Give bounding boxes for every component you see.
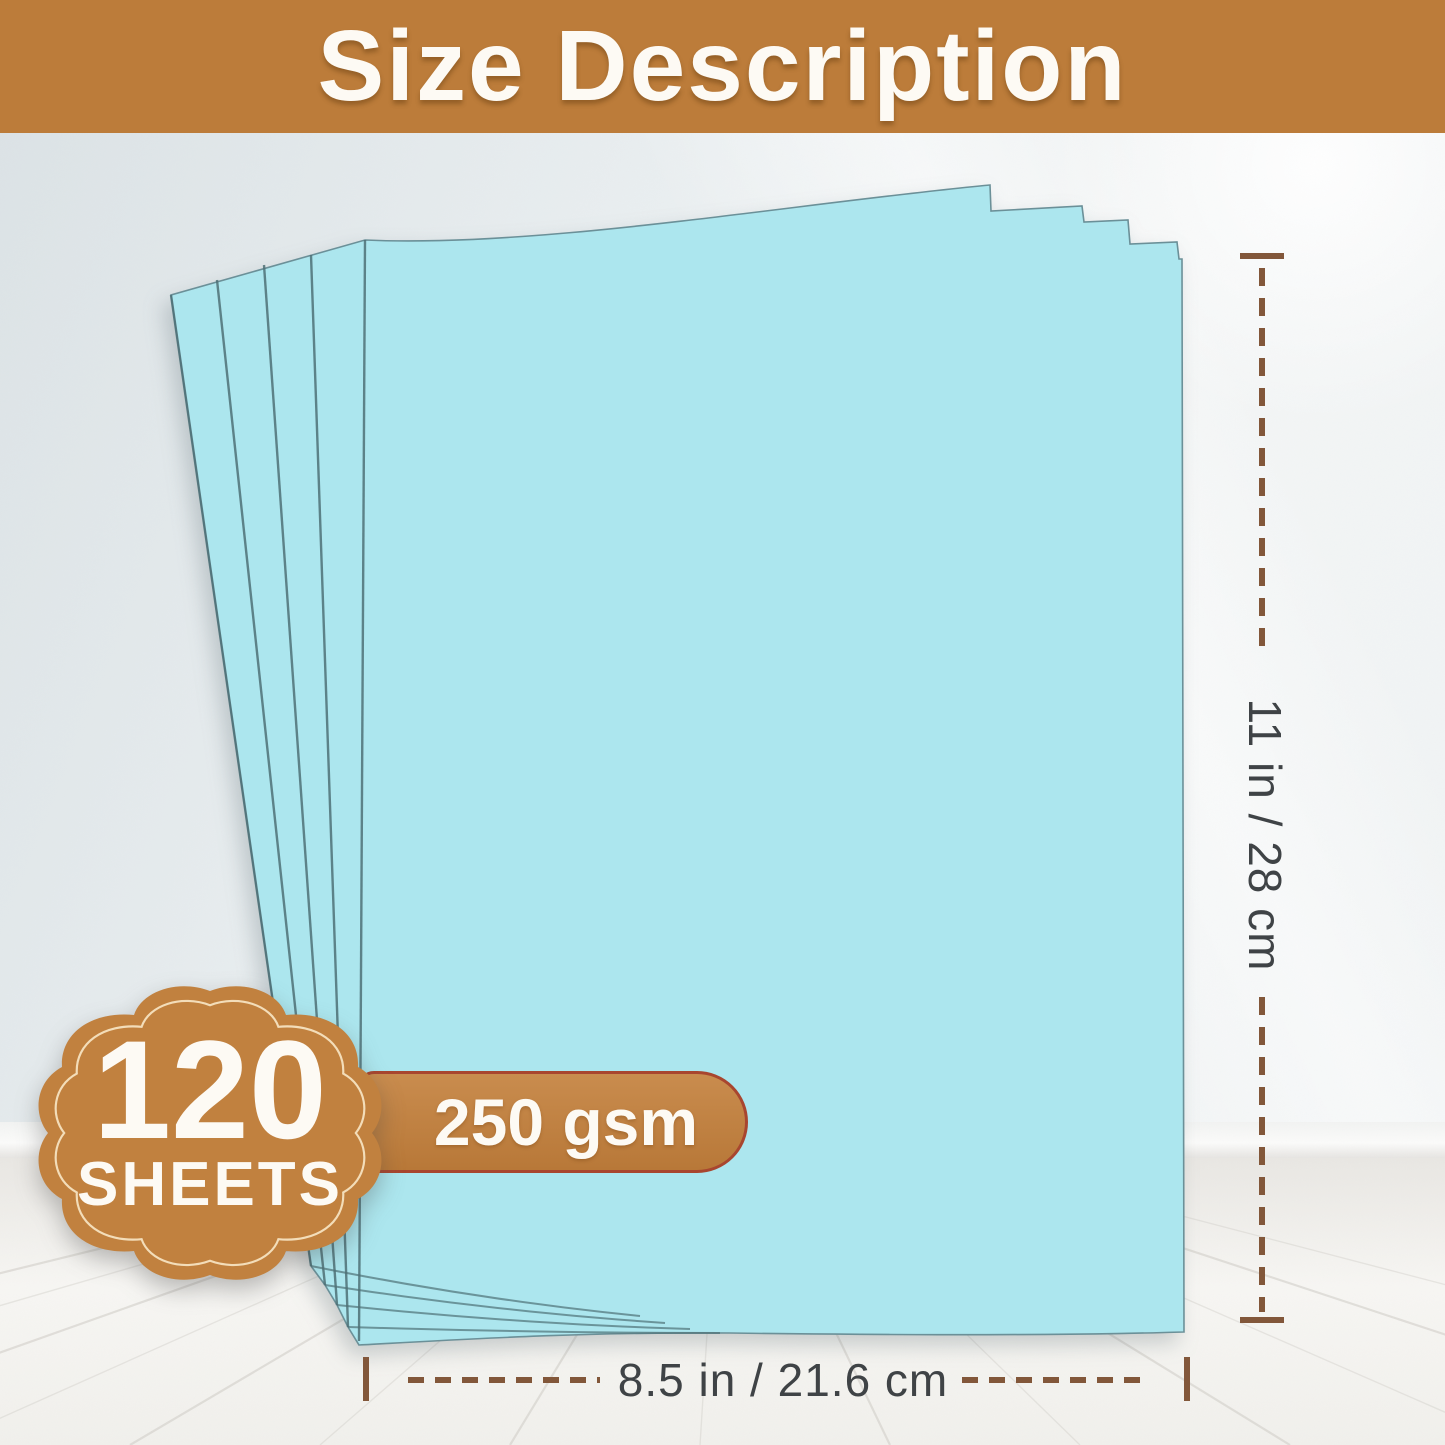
weight-pill-label: 250 gsm — [434, 1084, 698, 1160]
width-dim-line-left — [408, 1377, 600, 1383]
width-dim-left-cap — [363, 1357, 369, 1401]
width-dim-right-cap — [1184, 1357, 1190, 1401]
height-dim-line-upper — [1259, 268, 1265, 653]
height-dim-line-lower — [1259, 997, 1265, 1312]
page-banner: Size Description — [0, 0, 1445, 133]
weight-pill: 250 gsm — [358, 1071, 748, 1173]
height-dim-top-cap — [1240, 253, 1284, 259]
size-description-infographic: 11 in / 28 cm 8.5 in / 21.6 cm 250 gsm 1… — [0, 0, 1445, 1445]
banner-title: Size Description — [318, 9, 1128, 124]
height-dimension-label: 11 in / 28 cm — [1241, 675, 1289, 995]
badge-label: SHEETS — [77, 1150, 343, 1219]
width-dimension-label: 8.5 in / 21.6 cm — [583, 1356, 983, 1404]
badge-count: 120 — [93, 1011, 327, 1168]
sheet-count-badge: 120 SHEETS — [30, 978, 390, 1288]
width-dim-line-right — [962, 1377, 1146, 1383]
height-dim-bottom-cap — [1240, 1317, 1284, 1323]
